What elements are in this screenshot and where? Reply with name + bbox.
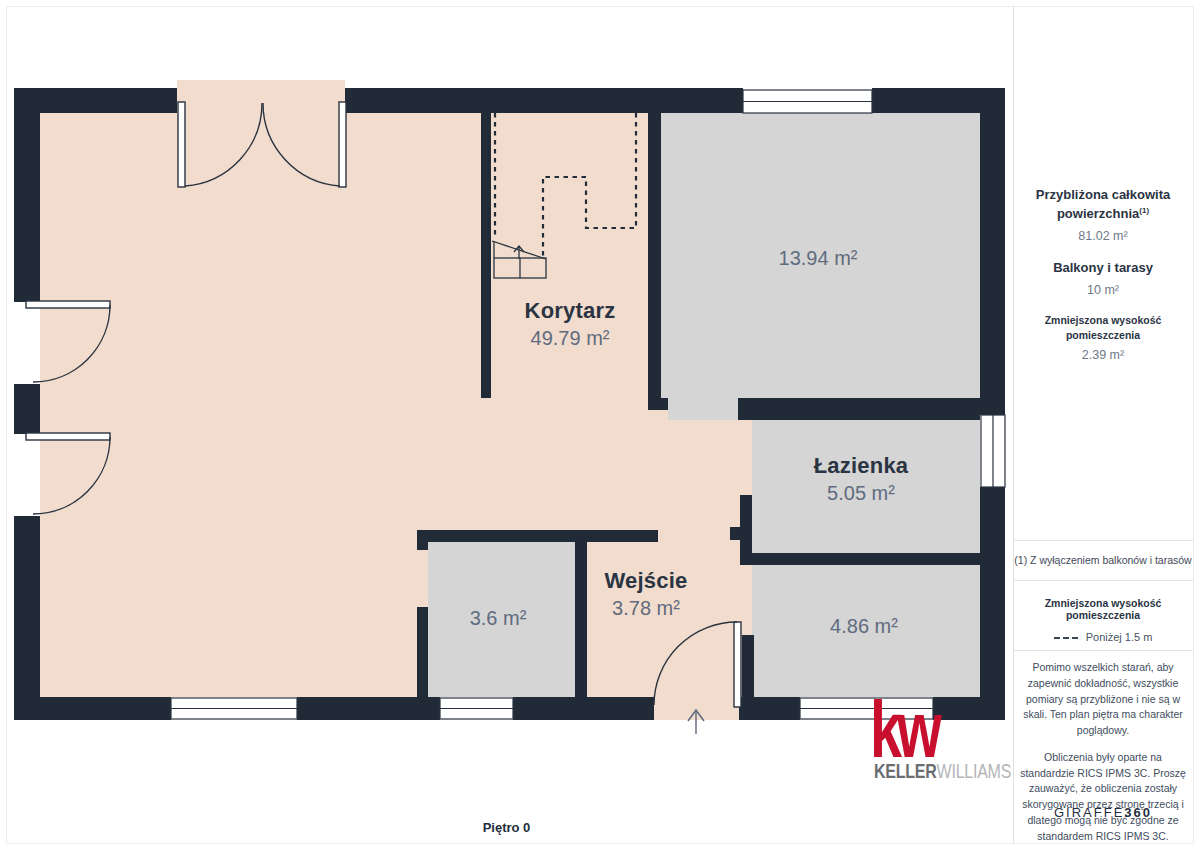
room-label-4-86: 4.86 m² [830,612,898,638]
stat-value: 2.39 m² [1013,348,1193,362]
room-label-lazienka: Łazienka 5.05 m² [814,453,909,505]
kw-wordmark: KELLERWILLIAMS [874,760,1011,783]
floorplan-drawing [0,0,1013,849]
room-name: Wejście [605,568,688,594]
stat-balconies: Balkony i tarasy 10 m² [1013,259,1193,297]
room-name: Łazienka [814,453,909,479]
area-stats: Przybliżona całkowita powierzchnia(1) 81… [1013,186,1193,378]
room-area: 13.94 m² [779,247,858,270]
stat-value: 81.02 m² [1013,229,1193,243]
room-area: 5.05 m² [814,482,909,505]
room-area: 3.78 m² [605,597,688,620]
room-label-wejscie: Wejście 3.78 m² [605,568,688,620]
stat-label: Balkony i tarasy [1013,259,1193,278]
room-area: 49.79 m² [525,327,616,350]
room-area: 4.86 m² [830,615,898,638]
sidebar-divider [1013,650,1193,651]
stat-total-area: Przybliżona całkowita powierzchnia(1) 81… [1013,186,1193,243]
brand-name: GIRAFFE [1054,805,1124,820]
legend-row: Poniżej 1.5 m [1013,631,1193,643]
legend-label: Poniżej 1.5 m [1086,631,1153,643]
kw-wordmark-williams: WILLIAMS [937,760,1012,782]
legend: Zmniejszona wysokość pomieszczenia Poniż… [1013,580,1193,643]
footnote: (1) Z wyłączeniem balkonów i tarasów [1013,540,1193,580]
kw-wordmark-keller: KELLER [874,760,937,782]
keller-williams-logo: kw KELLERWILLIAMS [870,690,1090,770]
room-label-korytarz: Korytarz 49.79 m² [525,298,616,350]
legend-title: Zmniejszona wysokość pomieszczenia [1013,597,1193,621]
stat-reduced-height: Zmniejszona wysokość pomieszczenia 2.39 … [1013,313,1193,362]
giraffe360-brand: GIRAFFE360 [1013,805,1193,820]
footnote-marker: (1) [1139,206,1149,215]
brand-suffix: 360 [1124,805,1152,820]
room-area: 3.6 m² [470,607,527,630]
room-name: Korytarz [525,298,616,324]
floorplan-page: Korytarz 49.79 m² 13.94 m² Łazienka 5.05… [0,0,1200,849]
stat-value: 10 m² [1013,283,1193,297]
room-label-3-6: 3.6 m² [470,604,527,630]
dashed-line-icon [1054,637,1078,639]
floor-level-label: Piętro 0 [0,820,1013,835]
stat-label: Zmniejszona wysokość pomieszczenia [1013,313,1193,343]
room-label-13-94: 13.94 m² [779,244,858,270]
kw-monogram-icon: kw [870,690,1028,770]
stat-label: Przybliżona całkowita powierzchnia [1036,187,1170,221]
